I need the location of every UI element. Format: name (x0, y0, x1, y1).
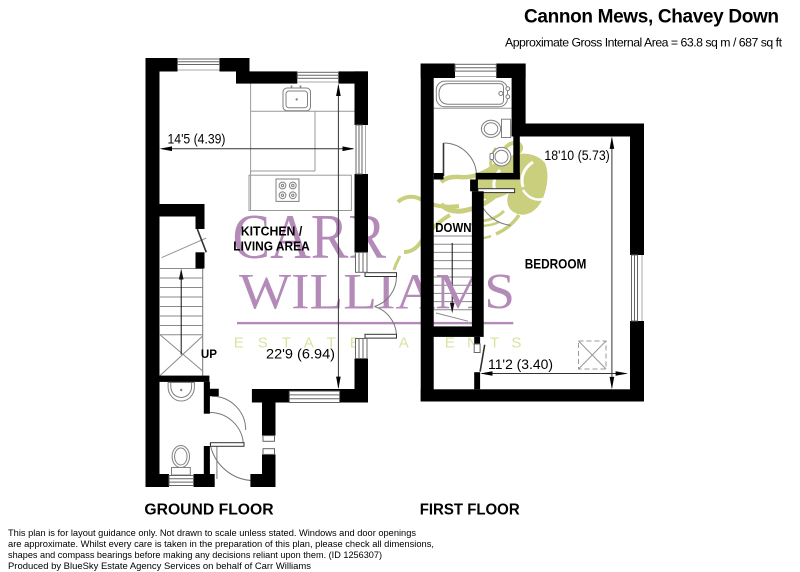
svg-text:Approximate Gross Internal Are: Approximate Gross Internal Area = 63.8 s… (505, 36, 783, 50)
svg-text:KITCHEN /: KITCHEN / (241, 223, 303, 238)
svg-text:DOWN: DOWN (435, 221, 471, 235)
svg-text:shapes and compass bearings be: shapes and compass bearings before makin… (8, 550, 382, 560)
svg-text:This plan is for layout guidan: This plan is for layout guidance only. N… (8, 528, 417, 538)
svg-text:FIRST FLOOR: FIRST FLOOR (420, 502, 520, 519)
svg-text:LIVING AREA: LIVING AREA (233, 238, 310, 253)
svg-text:Cannon Mews, Chavey Down: Cannon Mews, Chavey Down (524, 7, 779, 28)
svg-text:Produced by BlueSky Estate Age: Produced by BlueSky Estate Agency Servic… (8, 561, 312, 571)
svg-text:11'2 (3.40): 11'2 (3.40) (488, 357, 553, 372)
svg-text:AGENTS: AGENTS (399, 335, 534, 352)
svg-text:18'10 (5.73): 18'10 (5.73) (544, 148, 609, 163)
svg-text:are approximate. Whilst every: are approximate. Whilst every care is ta… (8, 539, 434, 549)
svg-text:22'9 (6.94): 22'9 (6.94) (266, 347, 335, 362)
svg-text:UP: UP (201, 347, 217, 361)
svg-text:GROUND FLOOR: GROUND FLOOR (144, 502, 274, 519)
svg-text:14'5 (4.39): 14'5 (4.39) (168, 132, 226, 147)
svg-text:BEDROOM: BEDROOM (525, 255, 587, 271)
